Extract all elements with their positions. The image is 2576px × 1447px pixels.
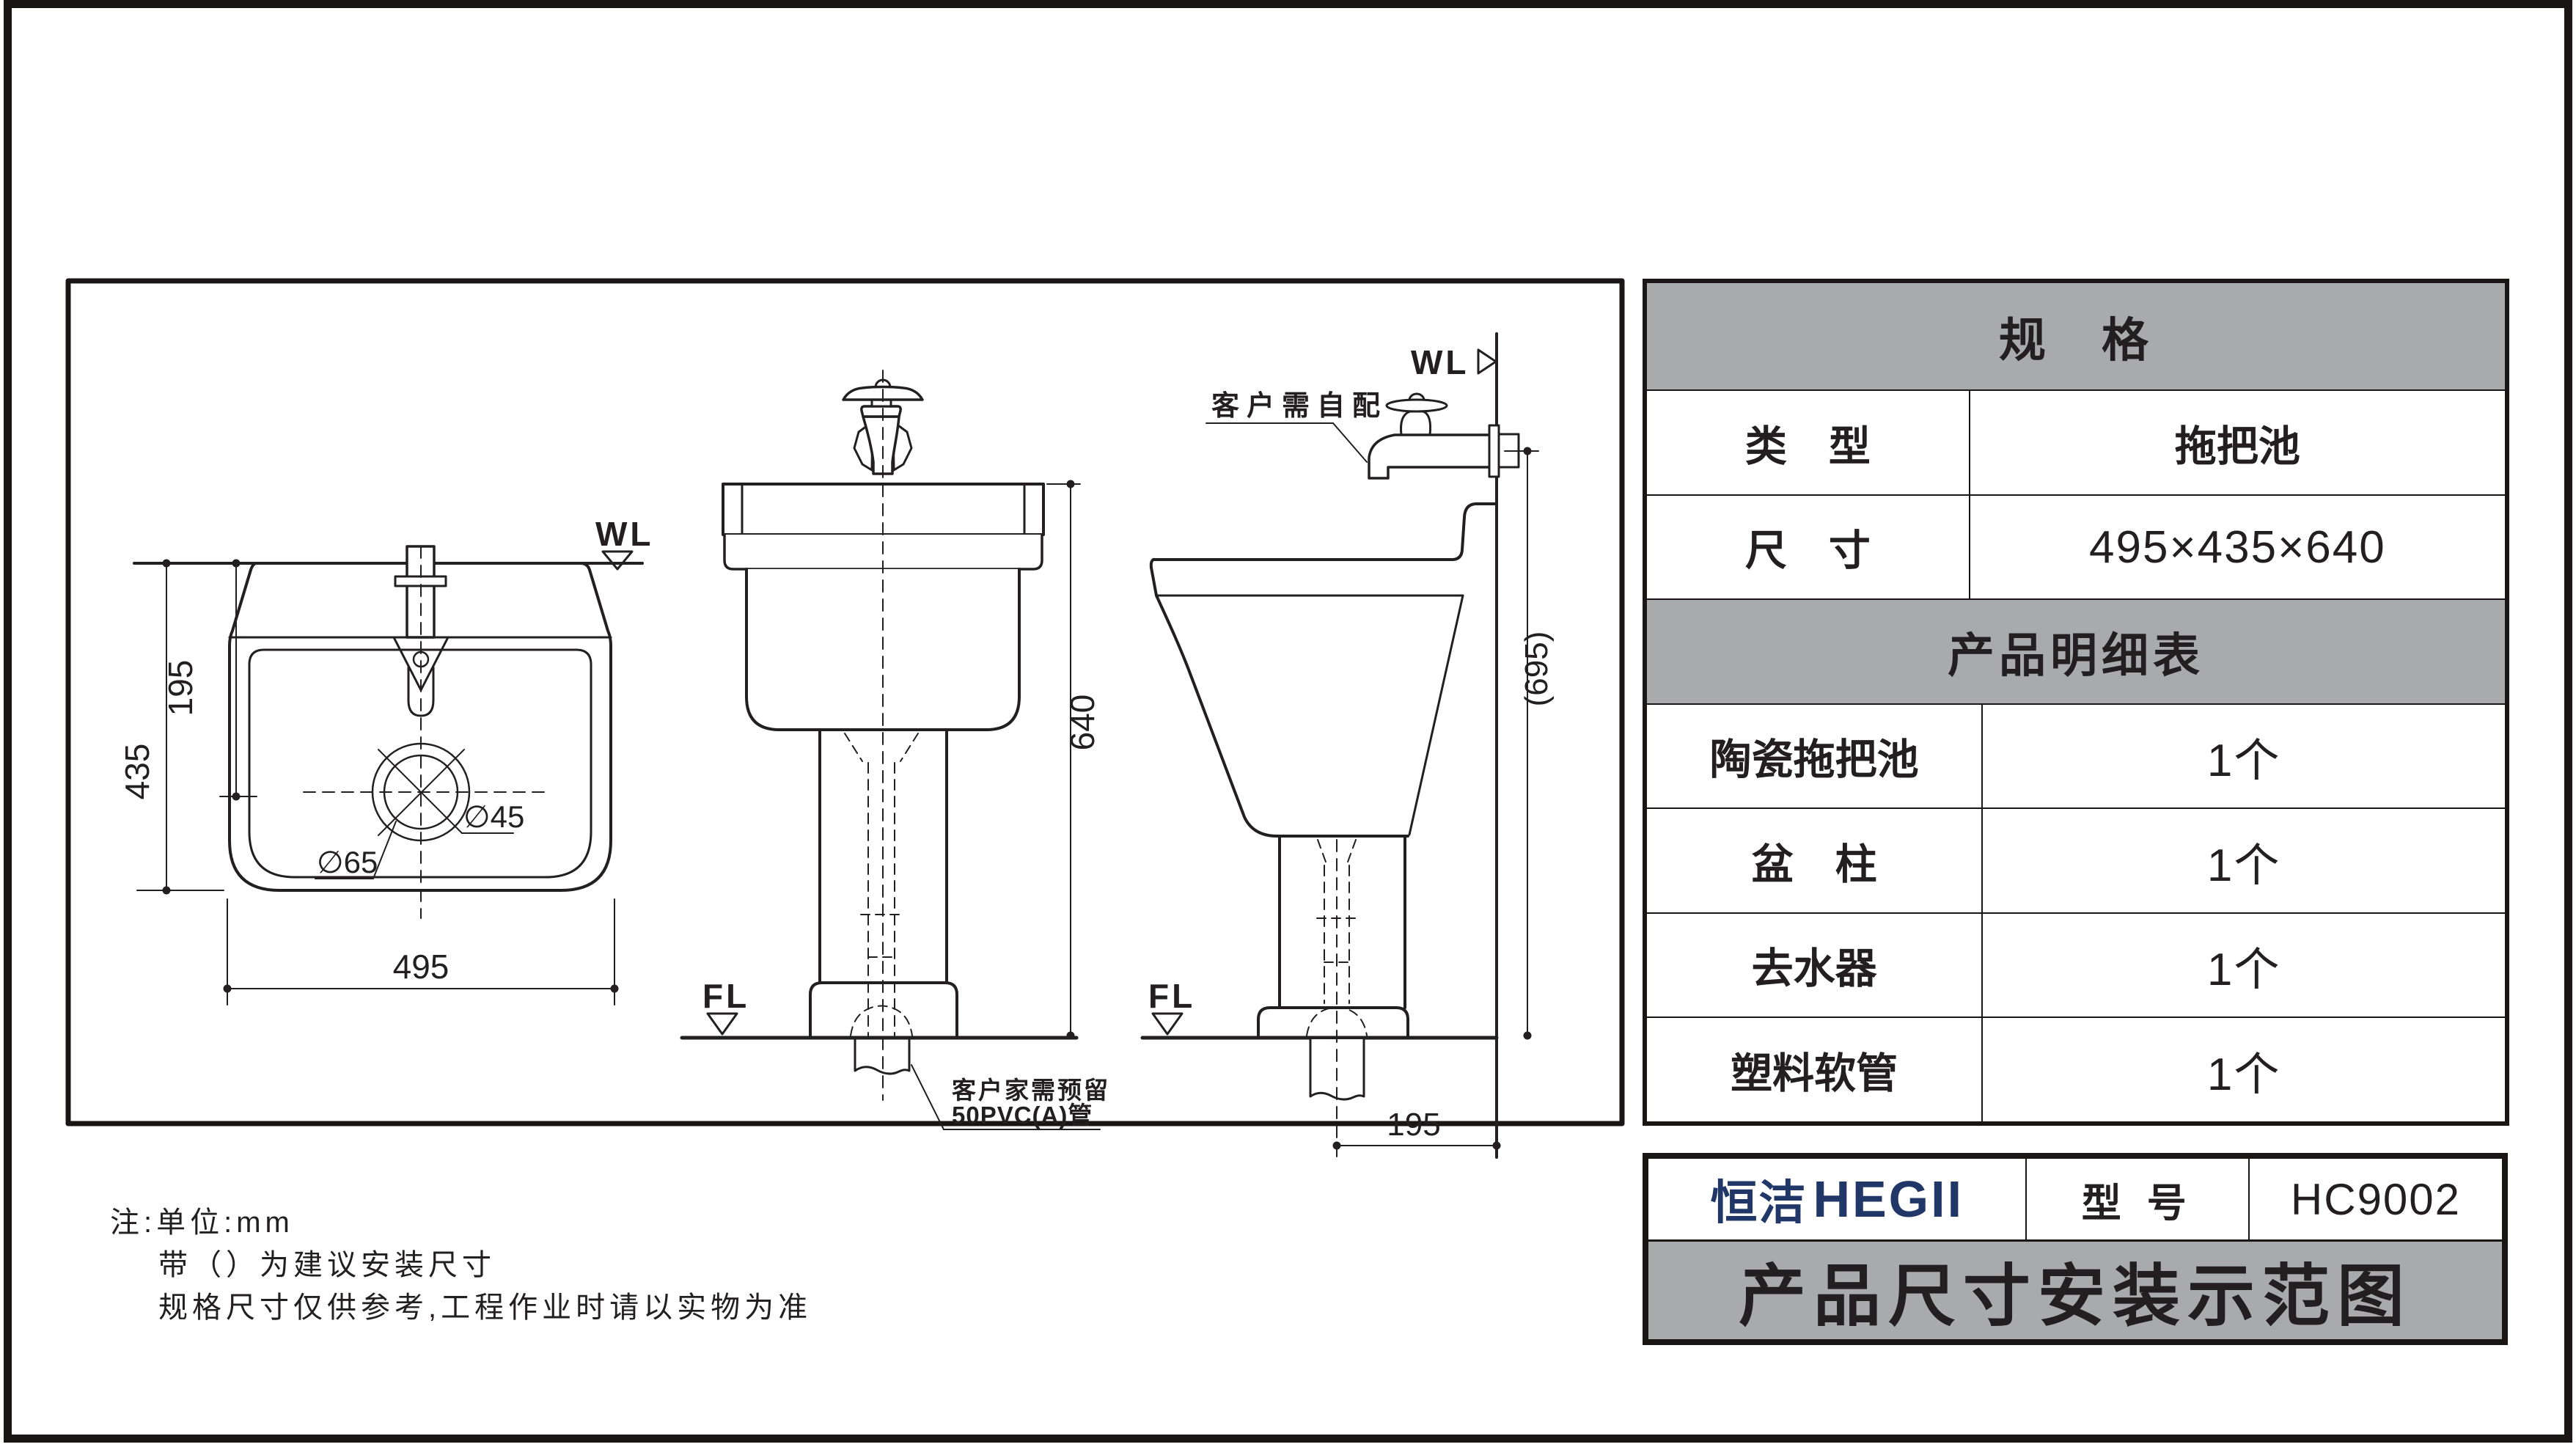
note-line: 带（）为建议安装尺寸 xyxy=(110,1244,812,1286)
plan-wl-triangle-icon xyxy=(603,552,632,569)
row-value: 495×435×640 xyxy=(1969,496,2505,599)
side-dim-height: (695) xyxy=(1519,631,1555,707)
model-label: 型 号 xyxy=(2025,1159,2247,1239)
side-base xyxy=(1258,1008,1408,1036)
table-row: 类 型 拖把池 xyxy=(1647,389,2505,494)
model-value: HC9002 xyxy=(2248,1159,2502,1239)
table-row: 尺 寸 495×435×640 xyxy=(1647,494,2505,599)
dim-dot xyxy=(1524,1032,1532,1040)
dim-dot xyxy=(163,560,171,568)
plan-dim-width: 495 xyxy=(393,948,449,986)
brand-logo-en: HEGII xyxy=(1813,1170,1964,1228)
plan-drain65-label: ∅65 xyxy=(317,845,378,879)
side-trap-dashed xyxy=(1318,840,1326,864)
table-row: 陶瓷拖把池 1个 xyxy=(1647,703,2505,808)
brand-logo: 恒洁 HEGII xyxy=(1648,1159,2025,1239)
front-trap-dashed xyxy=(845,733,862,761)
note-line: 注:单位:mm xyxy=(110,1201,812,1244)
plan-drain45-label: ∅45 xyxy=(463,799,524,834)
side-dim-offset: 195 xyxy=(1387,1107,1440,1143)
row-label: 盆 柱 xyxy=(1647,809,1981,912)
brand-logo-cn: 恒洁 xyxy=(1710,1165,1807,1233)
row-value: 拖把池 xyxy=(1969,391,2505,494)
side-wl-label: WL xyxy=(1411,343,1469,381)
table-row: 盆 柱 1个 xyxy=(1647,807,2505,912)
detail-header: 产品明细表 xyxy=(1647,598,2505,703)
plan-wl-label: WL xyxy=(595,515,654,553)
table-row: 去水器 1个 xyxy=(1647,912,2505,1017)
front-fl-label: FL xyxy=(702,977,749,1015)
front-trap-dashed xyxy=(900,733,918,761)
front-faucet-bonnet xyxy=(862,406,900,417)
dim-dot xyxy=(163,887,171,895)
dim-dot xyxy=(1493,1142,1501,1150)
side-bowl-back xyxy=(1409,596,1463,835)
row-label: 塑料软管 xyxy=(1647,1018,1981,1121)
plan-dim-depth: 435 xyxy=(118,744,156,800)
dim-dot xyxy=(1067,480,1075,488)
spec-table: 规 格 类 型 拖把池 尺 寸 495×435×640 产品明细表 陶瓷拖把池 … xyxy=(1643,279,2509,1126)
plan-view: ∅45 ∅65 WL 435 195 495 xyxy=(118,515,654,1005)
dim-dot xyxy=(1067,1032,1075,1040)
row-label: 陶瓷拖把池 xyxy=(1647,705,1981,808)
front-dim-height: 640 xyxy=(1063,695,1101,751)
notes: 注:单位:mm 带（）为建议安装尺寸 规格尺寸仅供参考,工程作业时请以实物为准 xyxy=(110,1201,812,1329)
side-fl-label: FL xyxy=(1148,977,1195,1015)
side-bowl-profile xyxy=(1151,560,1408,836)
row-label: 尺 寸 xyxy=(1647,496,1969,599)
dim-dot xyxy=(1524,447,1532,455)
row-value: 1个 xyxy=(1981,914,2505,1017)
dim-dot xyxy=(224,985,232,993)
row-label: 去水器 xyxy=(1647,914,1981,1017)
side-wl-triangle-icon xyxy=(1478,350,1496,373)
plan-dim-center: 195 xyxy=(161,660,199,717)
title-block: 恒洁 HEGII 型 号 HC9002 产品尺寸安装示范图 xyxy=(1643,1153,2508,1345)
front-leader-line xyxy=(911,1065,944,1129)
side-trap-dashed xyxy=(1347,840,1356,864)
side-faucet-body xyxy=(1369,435,1493,478)
front-leader-text-1: 客户家需预留 xyxy=(952,1077,1110,1104)
dim-dot xyxy=(232,560,241,568)
title-block-top-row: 恒洁 HEGII 型 号 HC9002 xyxy=(1648,1159,2502,1239)
dim-dot xyxy=(1333,1142,1341,1150)
drawing-title: 产品尺寸安装示范图 xyxy=(1648,1239,2502,1339)
side-view: WL FL 客户需自配 xyxy=(1142,334,1555,1159)
side-faucet-handle xyxy=(1387,400,1447,411)
table-row: 塑料软管 1个 xyxy=(1647,1016,2505,1121)
side-leader-line xyxy=(1333,423,1367,462)
side-leader-text: 客户需自配 xyxy=(1211,390,1387,422)
front-leader-text-2: 50PVC(A)管 xyxy=(952,1102,1093,1129)
note-line: 规格尺寸仅供参考,工程作业时请以实物为准 xyxy=(110,1286,812,1329)
side-faucet-neck xyxy=(1401,411,1431,435)
front-fl-triangle-icon xyxy=(708,1014,737,1034)
spec-header-label: 规 格 xyxy=(1999,303,2153,370)
dim-dot xyxy=(232,793,241,801)
row-value: 1个 xyxy=(1981,809,2505,912)
side-ledge-profile xyxy=(1153,504,1497,560)
spec-header: 规 格 xyxy=(1647,283,2505,389)
side-wall-flange xyxy=(1489,425,1499,477)
front-view: FL 640 客户家需预留 50PVC(A)管 xyxy=(682,370,1110,1129)
dim-dot xyxy=(611,985,619,993)
row-value: 1个 xyxy=(1981,1018,2505,1121)
detail-header-label: 产品明细表 xyxy=(1948,618,2204,686)
row-label: 类 型 xyxy=(1647,391,1969,494)
side-fl-triangle-icon xyxy=(1153,1014,1182,1034)
row-value: 1个 xyxy=(1981,705,2505,808)
